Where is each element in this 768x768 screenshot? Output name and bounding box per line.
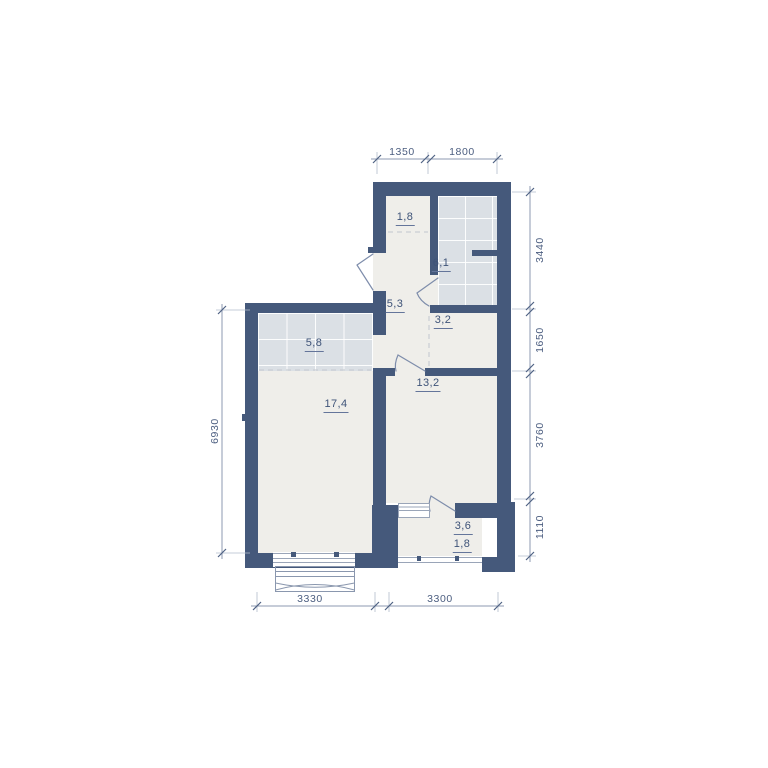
dim-top-2: 1800: [449, 147, 475, 158]
wall: [373, 196, 386, 253]
bathroom-door-opening: [430, 275, 438, 305]
balcony-window: [398, 556, 482, 563]
entrance-door: [357, 254, 373, 290]
wall: [497, 502, 515, 557]
dim-right-1: 3440: [535, 237, 546, 263]
balcony-door-opening: [430, 503, 455, 518]
wall: [373, 182, 511, 196]
wall: [425, 368, 497, 376]
wall: [497, 182, 511, 515]
wall: [482, 557, 515, 572]
room-label-wardrobe: 1,8: [396, 212, 415, 226]
bedroom-door-opening: [395, 368, 425, 376]
passage-opening: [373, 335, 386, 368]
dim-right-4: 1110: [535, 515, 546, 539]
room-label-balcony-reduced: 1,8: [453, 539, 472, 553]
wall-stub: [472, 250, 497, 256]
entrance-opening: [373, 253, 386, 291]
dim-right-2: 1650: [535, 327, 546, 353]
dim-bottom-2: 3300: [427, 594, 453, 605]
room-label-kitchen-zone: 5,8: [305, 338, 324, 352]
wall: [245, 303, 258, 568]
dim-right-3: 3760: [535, 422, 546, 448]
wall: [245, 553, 398, 568]
dim-bottom-1: 3330: [297, 594, 323, 605]
wall: [430, 305, 497, 313]
dim-top-1: 1350: [389, 147, 415, 158]
room-label-balcony: 3,6: [454, 521, 473, 535]
wall-jamb: [368, 247, 373, 253]
room-label-bedroom: 13,2: [415, 378, 440, 392]
room-label-living-room: 17,4: [323, 399, 348, 413]
floor-plan: 1,8 6,1 5,3 3,2 5,8 17,4 13,2 3,6 1,8 13…: [0, 0, 768, 768]
room-label-nook: 3,2: [434, 315, 453, 329]
dim-left-1: 6930: [210, 418, 221, 444]
wall: [245, 303, 386, 313]
room-label-hallway: 5,3: [386, 299, 405, 313]
room-label-bathroom: 6,1: [432, 258, 451, 272]
wall: [373, 313, 386, 335]
french-balcony: [276, 567, 355, 592]
bedroom-floor: [386, 376, 497, 503]
wall: [372, 505, 398, 558]
living-room-floor: [258, 371, 373, 553]
bedroom-window-unit: [398, 503, 430, 518]
wall-joint: [242, 414, 245, 421]
wall: [373, 368, 395, 376]
